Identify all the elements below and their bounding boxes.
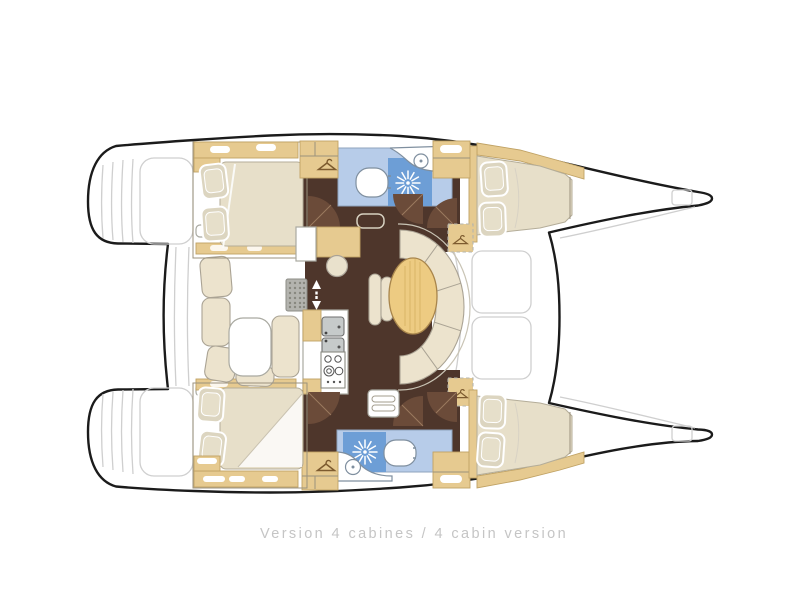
pillow [197, 387, 225, 423]
cabinet-port-fwd [433, 141, 470, 178]
pillow [479, 202, 506, 237]
galley [303, 310, 348, 394]
plan-caption: Version 4 cabines / 4 cabin version [14, 526, 800, 542]
boat-plan [0, 0, 800, 600]
stove [321, 352, 345, 388]
cockpit-table [229, 318, 271, 376]
saloon-table [389, 258, 437, 334]
trampoline-lines [560, 190, 695, 441]
entry-grate [286, 279, 307, 311]
floor-plan-page: Version 4 cabines / 4 cabin version [0, 0, 800, 600]
pillow [477, 432, 505, 468]
pillow [479, 394, 506, 429]
drawer-unit [368, 390, 399, 417]
pillow [199, 163, 229, 200]
bench-cushion [369, 274, 381, 325]
wardrobe-port [300, 141, 338, 178]
double-bed [220, 162, 303, 246]
aft-cabin-starboard [193, 383, 307, 488]
wardrobe-mid-port [448, 224, 473, 252]
pillow [480, 161, 508, 197]
forward-cabin-starboard [469, 390, 584, 488]
pillow [201, 206, 229, 242]
stool [327, 256, 348, 277]
toilet [384, 440, 416, 466]
cabinet-starboard-fwd [433, 452, 470, 488]
